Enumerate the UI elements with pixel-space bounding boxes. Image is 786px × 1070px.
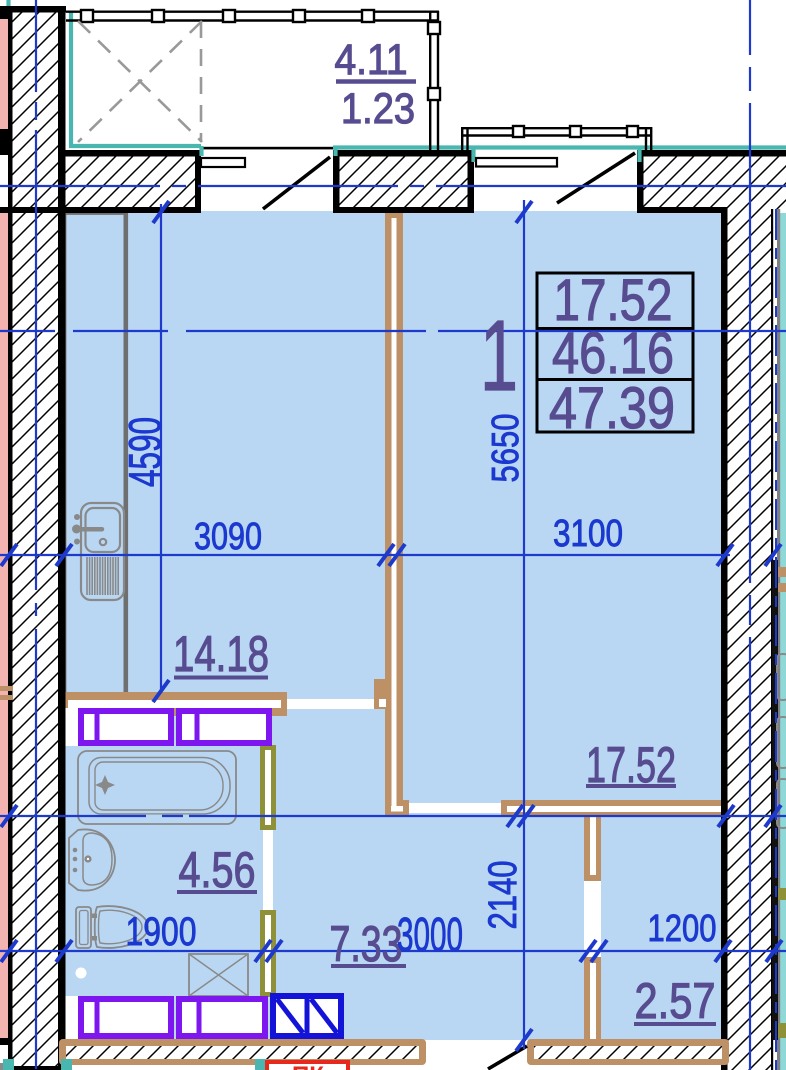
svg-text:4.11: 4.11 (335, 36, 408, 84)
svg-text:4590: 4590 (120, 417, 171, 487)
svg-text:1: 1 (480, 300, 518, 412)
svg-text:1200: 1200 (648, 908, 717, 950)
svg-text:2.57: 2.57 (635, 973, 716, 1029)
svg-text:4.56: 4.56 (179, 842, 256, 898)
svg-text:47.39: 47.39 (549, 376, 675, 441)
svg-text:3090: 3090 (194, 516, 262, 558)
svg-text:7.33: 7.33 (330, 916, 403, 972)
svg-text:1.23: 1.23 (341, 85, 415, 133)
svg-text:14.18: 14.18 (173, 626, 269, 682)
svg-text:ПК: ПК (292, 1062, 324, 1070)
svg-text:3100: 3100 (553, 513, 623, 555)
svg-text:2140: 2140 (481, 861, 525, 930)
svg-text:5650: 5650 (485, 414, 527, 483)
svg-text:1900: 1900 (126, 910, 197, 954)
svg-text:3000: 3000 (397, 909, 463, 962)
